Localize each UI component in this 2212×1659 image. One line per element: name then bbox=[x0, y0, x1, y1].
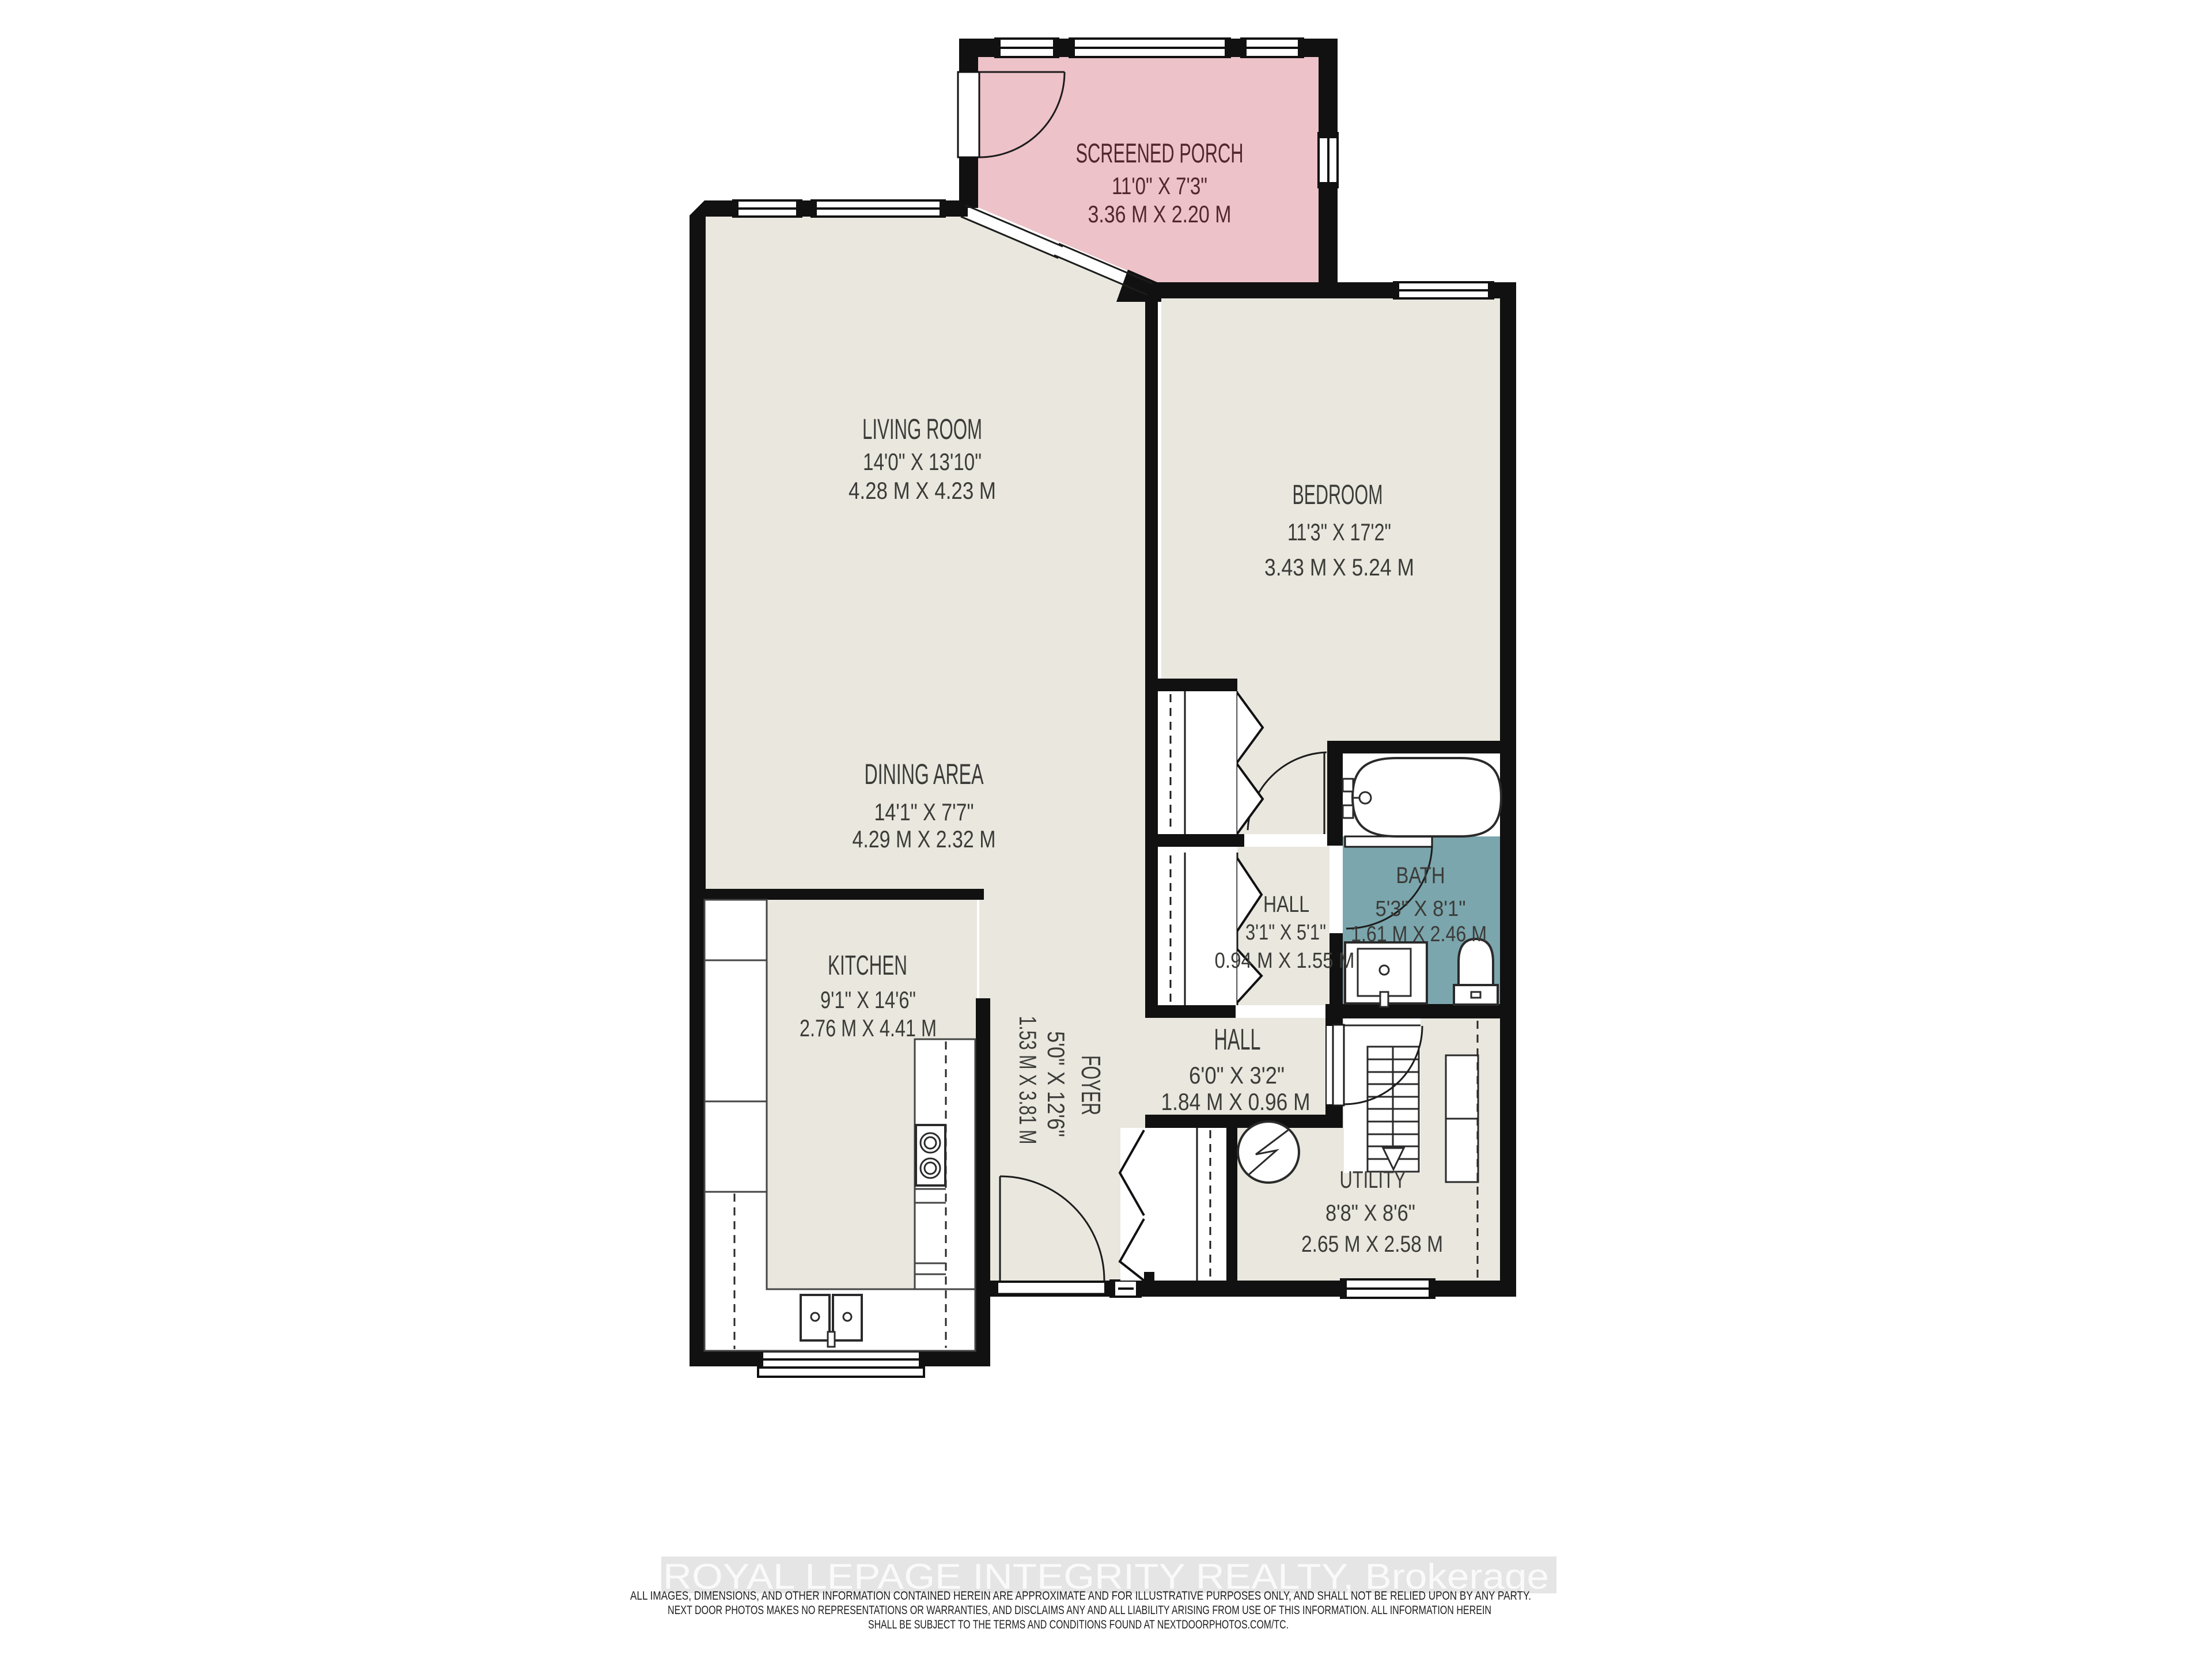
svg-text:HALL: HALL bbox=[1263, 892, 1309, 917]
svg-text:KITCHEN: KITCHEN bbox=[828, 950, 907, 981]
svg-text:2.76 M X 4.41 M: 2.76 M X 4.41 M bbox=[800, 1014, 937, 1041]
svg-text:5'3" X 8'1": 5'3" X 8'1" bbox=[1376, 897, 1466, 921]
svg-text:3.43 M X 5.24 M: 3.43 M X 5.24 M bbox=[1264, 554, 1414, 581]
svg-text:4.28 M X 4.23 M: 4.28 M X 4.23 M bbox=[849, 477, 996, 504]
svg-text:2.65 M X 2.58 M: 2.65 M X 2.58 M bbox=[1301, 1232, 1443, 1257]
svg-text:6'0" X 3'2": 6'0" X 3'2" bbox=[1189, 1062, 1285, 1089]
svg-text:14'0" X 13'10": 14'0" X 13'10" bbox=[863, 448, 982, 475]
svg-text:5'0" X 12'6": 5'0" X 12'6" bbox=[1043, 1031, 1070, 1137]
svg-text:8'8" X 8'6": 8'8" X 8'6" bbox=[1325, 1200, 1415, 1226]
svg-text:4.29 M X 2.32 M: 4.29 M X 2.32 M bbox=[853, 825, 996, 853]
svg-text:FOYER: FOYER bbox=[1076, 1055, 1106, 1115]
svg-text:NEXT DOOR PHOTOS MAKES NO REPR: NEXT DOOR PHOTOS MAKES NO REPRESENTATION… bbox=[668, 1604, 1491, 1617]
svg-text:ALL IMAGES, DIMENSIONS, AND OT: ALL IMAGES, DIMENSIONS, AND OTHER INFORM… bbox=[630, 1589, 1531, 1603]
svg-text:11'0" X 7'3": 11'0" X 7'3" bbox=[1112, 172, 1207, 199]
svg-text:SCREENED PORCH: SCREENED PORCH bbox=[1076, 138, 1244, 168]
svg-text:UTILITY: UTILITY bbox=[1340, 1166, 1406, 1193]
svg-text:HALL: HALL bbox=[1214, 1023, 1261, 1056]
svg-text:DINING AREA: DINING AREA bbox=[865, 758, 984, 790]
svg-text:1.53 M X 3.81 M: 1.53 M X 3.81 M bbox=[1014, 1016, 1041, 1145]
svg-text:14'1" X 7'7": 14'1" X 7'7" bbox=[874, 798, 974, 825]
svg-text:3'1" X 5'1": 3'1" X 5'1" bbox=[1245, 921, 1326, 945]
svg-text:SHALL BE SUBJECT TO THE TERMS: SHALL BE SUBJECT TO THE TERMS AND CONDIT… bbox=[868, 1618, 1289, 1631]
svg-text:1.61 M X 2.46 M: 1.61 M X 2.46 M bbox=[1351, 922, 1487, 946]
svg-text:9'1" X 14'6": 9'1" X 14'6" bbox=[820, 986, 916, 1013]
svg-text:3.36 M X 2.20 M: 3.36 M X 2.20 M bbox=[1088, 200, 1232, 228]
svg-text:LIVING ROOM: LIVING ROOM bbox=[862, 413, 982, 445]
svg-text:11'3" X 17'2": 11'3" X 17'2" bbox=[1287, 518, 1391, 546]
svg-text:BEDROOM: BEDROOM bbox=[1293, 480, 1383, 510]
svg-text:BATH: BATH bbox=[1396, 863, 1445, 888]
svg-text:0.94 M X 1.55 M: 0.94 M X 1.55 M bbox=[1215, 949, 1355, 973]
svg-text:1.84 M X 0.96 M: 1.84 M X 0.96 M bbox=[1161, 1088, 1310, 1115]
